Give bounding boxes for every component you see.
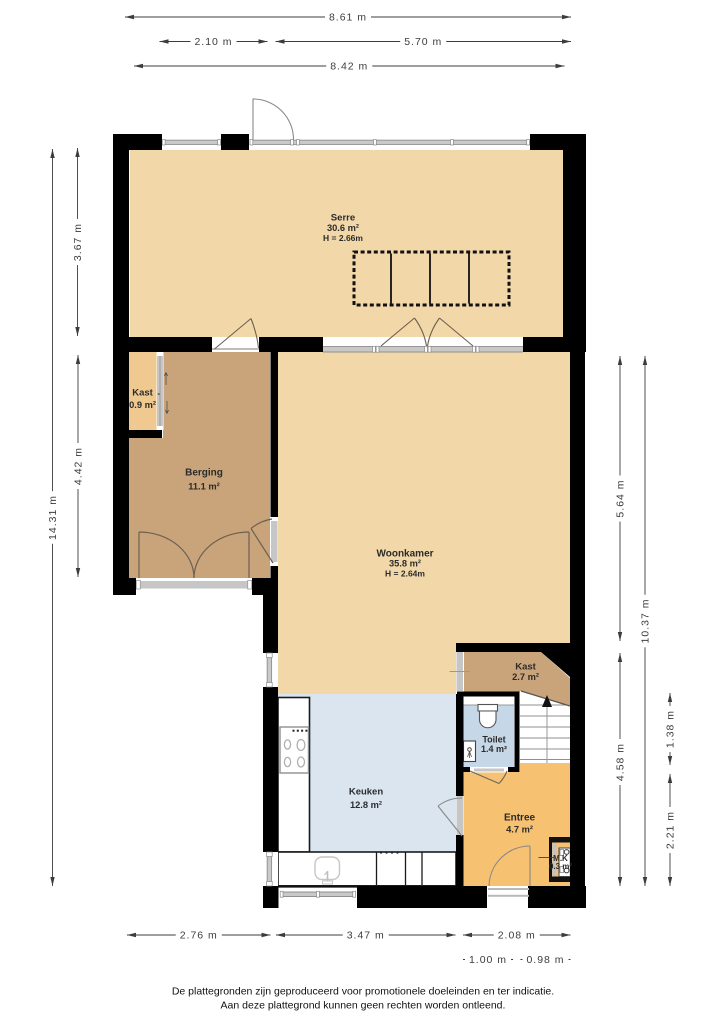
svg-text:H = 2.64m: H = 2.64m <box>385 569 425 579</box>
svg-text:H = 2.66m: H = 2.66m <box>323 233 363 243</box>
svg-text:14.31 m: 14.31 m <box>47 495 59 540</box>
svg-text:8.61 m: 8.61 m <box>329 12 367 24</box>
svg-text:Serre: Serre <box>331 213 356 224</box>
svg-text:3.67 m: 3.67 m <box>72 223 84 261</box>
svg-text:4.58 m: 4.58 m <box>615 743 627 781</box>
svg-text:5.64 m: 5.64 m <box>615 479 627 517</box>
svg-text:4.7 m²: 4.7 m² <box>506 825 533 835</box>
svg-text:Keuken: Keuken <box>349 787 384 798</box>
svg-text:Kast: Kast <box>515 662 536 673</box>
svg-text:2.21 m: 2.21 m <box>665 811 677 849</box>
svg-text:2.10 m: 2.10 m <box>194 36 232 48</box>
svg-text:35.8 m²: 35.8 m² <box>389 559 421 569</box>
svg-text:Entree: Entree <box>504 813 536 824</box>
svg-text:11.1 m²: 11.1 m² <box>188 482 220 492</box>
svg-text:Aan deze plattegrond kunnen ge: Aan deze plattegrond kunnen geen rechten… <box>221 1000 506 1012</box>
svg-text:1.38 m: 1.38 m <box>665 710 677 748</box>
svg-text:30.6 m²: 30.6 m² <box>327 223 359 233</box>
svg-text:0.98 m: 0.98 m <box>526 954 564 966</box>
svg-text:Kast: Kast <box>132 388 153 399</box>
svg-text:2.76 m: 2.76 m <box>180 930 218 942</box>
svg-text:2.08 m: 2.08 m <box>498 930 536 942</box>
svg-text:De plattegronden zijn geproduc: De plattegronden zijn geproduceerd voor … <box>172 986 554 998</box>
svg-text:10.37 m: 10.37 m <box>640 599 652 644</box>
svg-text:8.42 m: 8.42 m <box>330 61 368 73</box>
svg-text:Toilet: Toilet <box>482 735 505 745</box>
svg-text:0.3 m²: 0.3 m² <box>549 862 572 871</box>
svg-text:4.42 m: 4.42 m <box>73 447 85 485</box>
svg-text:2.7 m²: 2.7 m² <box>512 672 539 682</box>
svg-text:3.47 m: 3.47 m <box>347 930 385 942</box>
svg-text:12.8 m²: 12.8 m² <box>350 800 382 810</box>
svg-text:0.9 m²: 0.9 m² <box>129 400 156 410</box>
svg-text:5.70 m: 5.70 m <box>404 36 442 48</box>
svg-text:1.4 m²: 1.4 m² <box>481 744 507 754</box>
svg-text:1.00 m: 1.00 m <box>469 954 507 966</box>
svg-text:Berging: Berging <box>185 468 223 479</box>
